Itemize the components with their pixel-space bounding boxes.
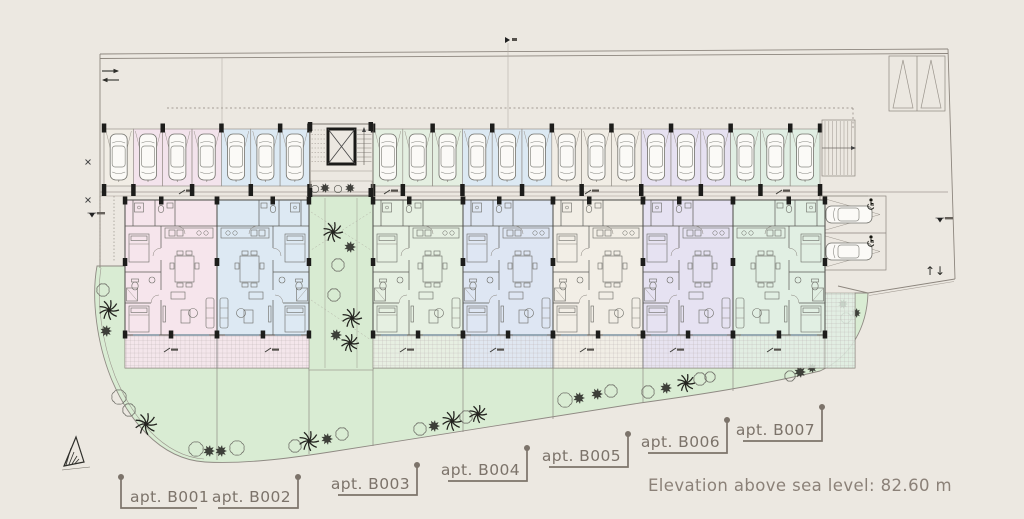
parking-bay (163, 129, 192, 186)
apartment-unit-B001 (123, 197, 219, 339)
car-icon (826, 243, 872, 260)
car-icon (499, 134, 516, 180)
callout-dot (118, 474, 124, 480)
parking-bay (552, 129, 582, 186)
parking-bay (760, 129, 790, 186)
callout-dot (724, 417, 730, 423)
car-icon (257, 134, 274, 180)
site-plan-drawing: ↑↓apt. B001apt. B002apt. B003apt. B004ap… (0, 0, 1024, 519)
car-icon (528, 134, 545, 180)
callout-dot (414, 462, 420, 468)
apt-label-B003: apt. B003 (331, 475, 410, 493)
parking-bay (221, 129, 250, 186)
car-icon (228, 134, 245, 180)
apt-label-B005: apt. B005 (542, 447, 621, 465)
car-icon (797, 134, 814, 180)
parking-bay (492, 129, 522, 186)
parking-bay (433, 129, 463, 186)
apartment-unit-B002 (215, 197, 311, 339)
callout-dot (524, 445, 530, 451)
callout-dot (819, 404, 825, 410)
parking-bay (373, 129, 403, 186)
courtyard (309, 196, 373, 370)
apt-label-B006: apt. B006 (641, 433, 720, 451)
parking-bay (671, 129, 701, 186)
callout-dot (295, 474, 301, 480)
parking-bay (403, 129, 433, 186)
parking-bay (731, 129, 761, 186)
car-icon (439, 134, 456, 180)
parking-bay (280, 129, 309, 186)
parking-row (102, 124, 823, 197)
apt-label-B002: apt. B002 (212, 488, 291, 506)
car-icon (618, 134, 635, 180)
parking-bay (104, 129, 133, 186)
parking-bay (462, 129, 492, 186)
car-icon (558, 134, 575, 180)
callout-dot (625, 431, 631, 437)
car-icon (707, 134, 724, 180)
parking-bay (641, 129, 671, 186)
parking-bay (790, 129, 820, 186)
apt-label-B001: apt. B001 (130, 488, 209, 506)
car-icon (588, 134, 605, 180)
car-icon (379, 134, 396, 180)
apt-label-B007: apt. B007 (736, 421, 815, 439)
car-icon (767, 134, 784, 180)
apartment-unit-B006 (641, 197, 735, 339)
updown-arrows-icon: ↑↓ (925, 264, 945, 278)
apartment-unit-B003 (371, 197, 465, 339)
car-icon (286, 134, 303, 180)
car-icon (737, 134, 754, 180)
parking-bay (701, 129, 731, 186)
elevation-note: Elevation above sea level: 82.60 m (648, 476, 952, 495)
car-icon (469, 134, 486, 180)
parking-bay (133, 129, 162, 186)
apartment-unit-B005 (551, 197, 645, 339)
apt-label-B004: apt. B004 (441, 461, 520, 479)
car-icon (409, 134, 426, 180)
car-icon (110, 134, 127, 180)
parking-bay (192, 129, 221, 186)
car-icon (169, 134, 186, 180)
apartment-unit-B004 (461, 197, 555, 339)
car-icon (140, 134, 157, 180)
car-icon (826, 206, 872, 223)
car-icon (677, 134, 694, 180)
floor-plan-canvas: ↑↓apt. B001apt. B002apt. B003apt. B004ap… (0, 0, 1024, 519)
parking-bay (251, 129, 280, 186)
parking-bay (611, 129, 641, 186)
apartment-unit-B007 (731, 197, 827, 339)
car-icon (648, 134, 665, 180)
car-icon (198, 134, 215, 180)
parking-bay (582, 129, 612, 186)
parking-bay (522, 129, 552, 186)
